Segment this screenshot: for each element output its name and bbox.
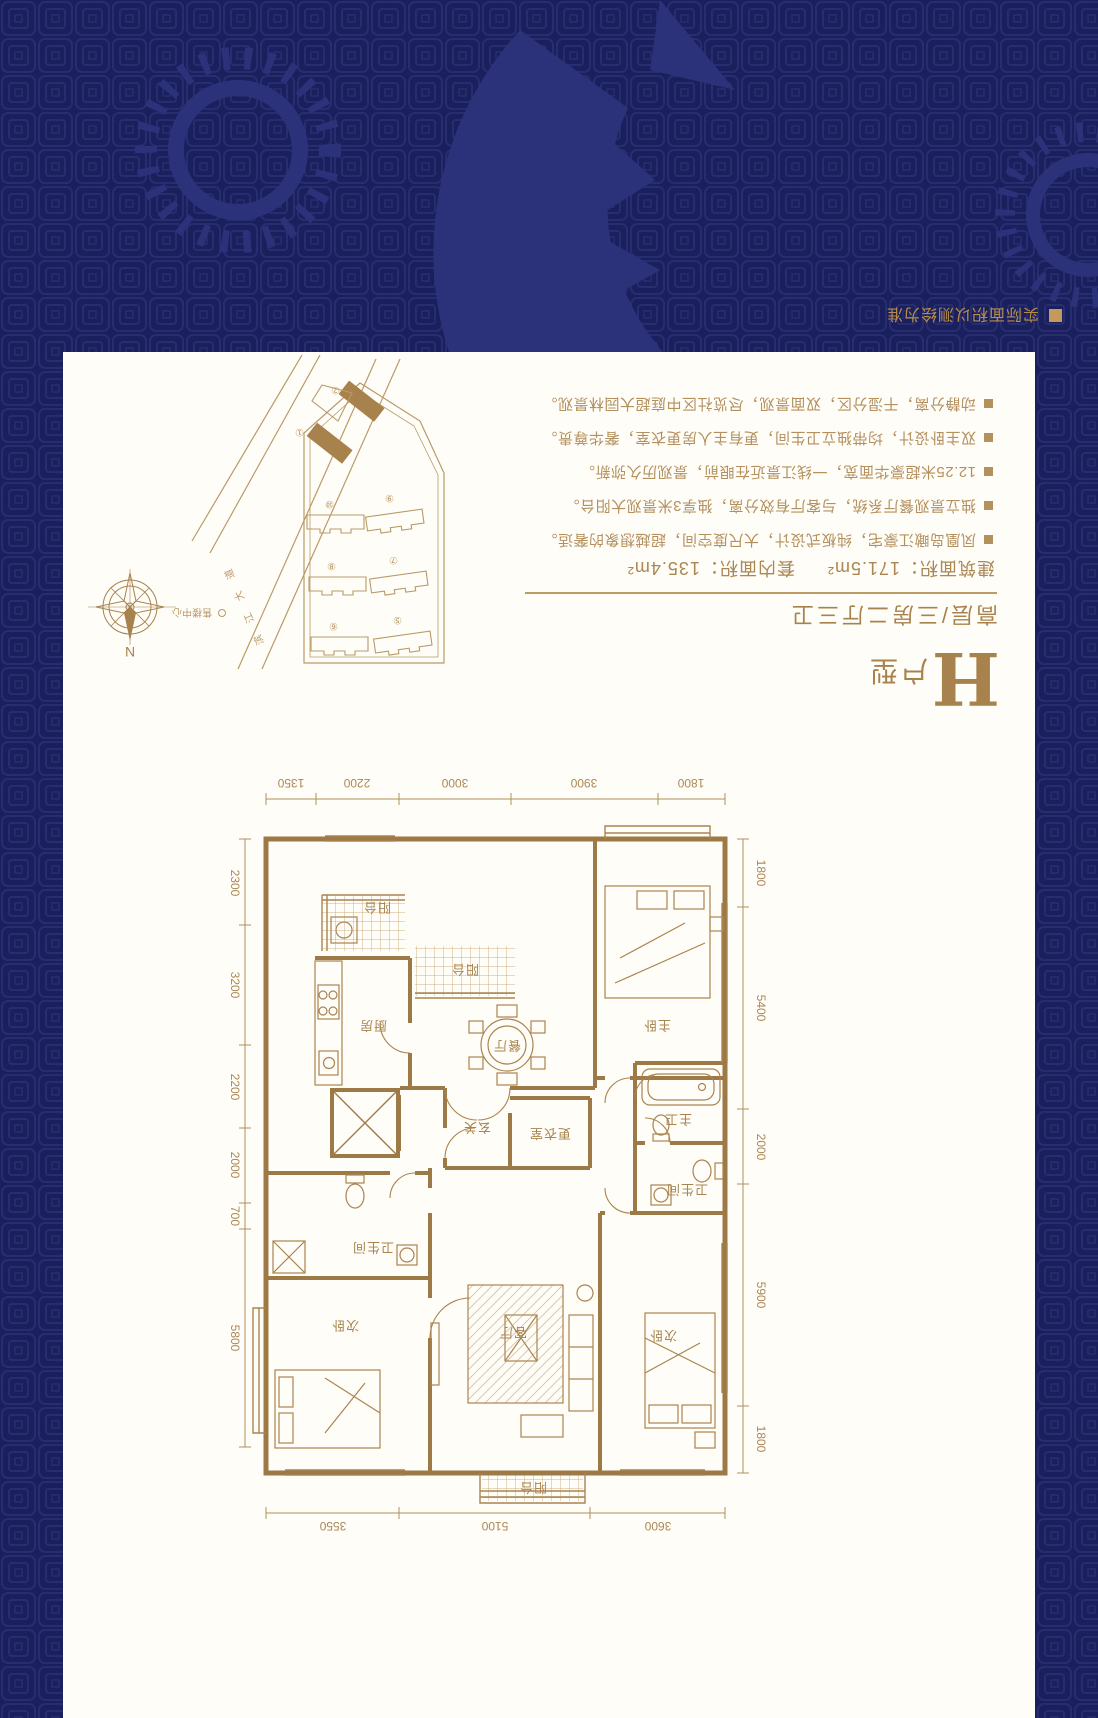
room-master-bedroom: 主卧 — [643, 1018, 671, 1033]
feature-item: 动静分离，干湿分区，双面景观，尽览社区中庭超大园林景观。 — [453, 393, 993, 414]
area-built-label: 建筑面积： — [900, 558, 995, 578]
svg-text:售楼中心: 售楼中心 — [172, 606, 212, 619]
svg-text:⑥: ⑥ — [329, 620, 338, 631]
dim-bottom-2: 3000 — [441, 776, 468, 790]
room-foyer: 玄关 — [463, 1120, 491, 1135]
svg-text:⑨: ⑨ — [385, 492, 394, 503]
feature-text: 凤凰岛瞰江豪宅，纯板式设计，大尺度空间，超越想象的奢适。 — [542, 529, 976, 550]
room-dressing: 更衣室 — [529, 1126, 571, 1141]
disclaimer-square-icon — [1049, 310, 1062, 323]
compass-icon: N — [88, 569, 176, 660]
room-balcony-service: 阳台 — [363, 900, 391, 915]
balcony-hatch — [322, 895, 583, 1501]
svg-text:⑦: ⑦ — [389, 554, 398, 565]
dim-left-0: 1800 — [754, 1426, 768, 1453]
area-info: 建筑面积：171.5m² 套内面积：135.4m² — [601, 556, 995, 582]
feature-text: 动静分离，干湿分区，双面景观，尽览社区中庭超大园林景观。 — [542, 393, 976, 414]
dim-left-4: 1800 — [754, 860, 768, 887]
room-bedroom-tr: 次卧 — [331, 1318, 359, 1333]
feature-item: 凤凰岛瞰江豪宅，纯板式设计，大尺度空间，超越想象的奢适。 — [453, 529, 993, 550]
gold-divider — [525, 592, 997, 594]
dim-left-1: 5900 — [754, 1282, 768, 1309]
bullet-square-icon — [984, 535, 993, 544]
feature-item: 12.25米超豪华面宽，一线江景近在眼前，景观历久弥新。 — [453, 461, 993, 482]
svg-text:⑧: ⑧ — [327, 560, 336, 571]
unit-title-suffix: 户型 — [868, 646, 928, 692]
area-built-value: 171.5m² — [827, 558, 900, 578]
bullet-square-icon — [984, 501, 993, 510]
feature-item: 独立景观餐厅系统，与客厅有效分离，独享3米景观大阳台。 — [453, 495, 993, 516]
room-master-bath: 主卫 — [664, 1112, 692, 1127]
dim-bottom-0: 1800 — [677, 776, 704, 790]
rotated-content: 3600 5100 3550 1800 3900 3000 2200 1350 … — [0, 0, 1098, 1718]
dim-bottom-4: 1350 — [277, 776, 304, 790]
feature-list: 凤凰岛瞰江豪宅，纯板式设计，大尺度空间，超越想象的奢适。 独立景观餐厅系统，与客… — [453, 380, 993, 550]
bullet-square-icon — [984, 399, 993, 408]
svg-text:①: ① — [295, 426, 304, 437]
floor-plan-svg: 3600 5100 3550 1800 3900 3000 2200 1350 … — [125, 753, 885, 1543]
unit-subtitle: 高层/三房二厅三卫 — [789, 600, 998, 632]
dim-top-0: 3600 — [644, 1519, 671, 1533]
dim-top-1: 5100 — [481, 1519, 508, 1533]
svg-text:②: ② — [331, 384, 340, 395]
dim-right-2: 2000 — [228, 1152, 242, 1179]
disclaimer-text: 实际面积以测绘为准 — [886, 304, 1039, 328]
room-balcony-top: 阳台 — [519, 1480, 547, 1495]
dim-left-2: 2000 — [754, 1134, 768, 1161]
room-bedroom-tl: 次卧 — [649, 1328, 677, 1343]
disclaimer: 实际面积以测绘为准 — [886, 304, 1062, 328]
floorplan-card: 3600 5100 3550 1800 3900 3000 2200 1350 … — [63, 352, 1035, 1718]
dim-right-5: 2300 — [228, 870, 242, 897]
area-inner-value: 135.4m² — [627, 558, 700, 578]
compass-north-label: N — [125, 644, 135, 660]
svg-text:⑩: ⑩ — [325, 498, 334, 509]
poster: { "page": { "disclaimer": "实际面积以测绘为准" },… — [0, 0, 1098, 1718]
bullet-square-icon — [984, 467, 993, 476]
dimension-chains — [239, 793, 749, 1519]
dim-bottom-3: 2200 — [343, 776, 370, 790]
site-plan-svg: ⑤ ⑥ ⑦ ⑧ ⑨ ⑩ ① ② 滨江大道 售楼中心 N — [88, 355, 460, 673]
unit-title-letter: H — [932, 646, 1000, 710]
feature-item: 双主卧设计，均带独立卫生间，更有主人房更衣室，奢华尊贵。 — [453, 427, 993, 448]
bullet-square-icon — [984, 433, 993, 442]
feature-text: 独立景观餐厅系统，与客厅有效分离，独享3米景观大阳台。 — [564, 495, 976, 516]
site-boundary — [192, 355, 444, 669]
room-balcony-mid: 阳台 — [451, 962, 479, 977]
feature-text: 12.25米超豪华面宽，一线江景近在眼前，景观历久弥新。 — [579, 461, 976, 482]
dim-left-3: 5400 — [754, 995, 768, 1022]
road-name: 滨江大道 — [216, 554, 267, 647]
dim-right-3: 2200 — [228, 1074, 242, 1101]
dimension-labels: 3600 5100 3550 1800 3900 3000 2200 1350 … — [228, 776, 768, 1533]
dim-right-1: 700 — [228, 1206, 242, 1226]
room-bath-tr: 卫生间 — [352, 1240, 394, 1255]
dim-right-0: 5800 — [228, 1325, 242, 1352]
dim-right-4: 3200 — [228, 972, 242, 999]
sales-center-label: 售楼中心 — [172, 606, 226, 619]
feature-text: 双主卧设计，均带独立卫生间，更有主人房更衣室，奢华尊贵。 — [542, 427, 976, 448]
dim-bottom-1: 3900 — [570, 776, 597, 790]
unit-title: H 户型 — [868, 646, 1000, 710]
room-kitchen: 厨房 — [359, 1018, 387, 1033]
dim-top-2: 3550 — [319, 1519, 346, 1533]
room-bath-left: 卫生间 — [666, 1182, 708, 1197]
room-dining: 餐厅 — [493, 1038, 521, 1053]
svg-text:⑤: ⑤ — [393, 614, 402, 625]
room-living: 客厅 — [499, 1325, 527, 1340]
area-inner-label: 套内面积： — [700, 558, 795, 578]
